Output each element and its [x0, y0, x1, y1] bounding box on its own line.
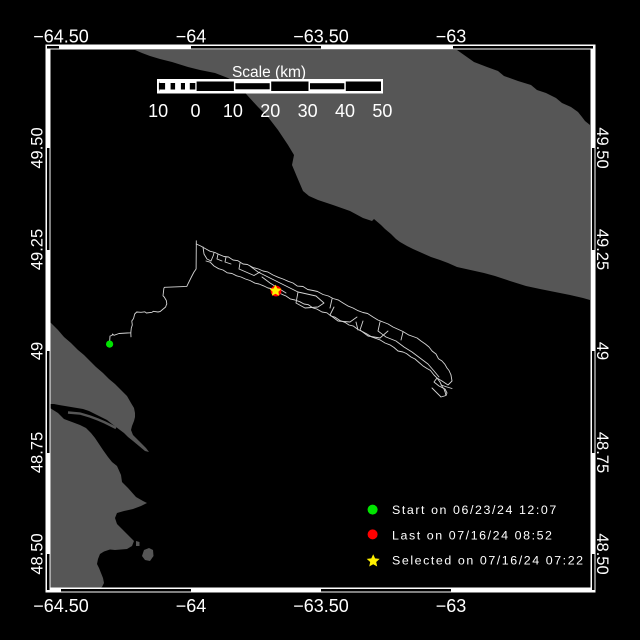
svg-text:0: 0: [190, 101, 200, 121]
svg-text:49.50: 49.50: [29, 127, 47, 168]
svg-text:48.50: 48.50: [29, 533, 47, 574]
svg-text:−64: −64: [176, 27, 207, 47]
svg-text:49.25: 49.25: [593, 229, 611, 270]
svg-text:48.50: 48.50: [593, 533, 611, 574]
svg-text:49: 49: [29, 342, 47, 360]
svg-text:−63.50: −63.50: [293, 596, 349, 616]
svg-text:48.75: 48.75: [593, 432, 611, 473]
svg-text:50: 50: [372, 101, 392, 121]
svg-text:30: 30: [298, 101, 318, 121]
svg-text:−63: −63: [436, 27, 467, 47]
svg-text:Last on 07/16/24 08:52: Last on 07/16/24 08:52: [392, 528, 554, 542]
svg-text:49: 49: [593, 342, 611, 360]
svg-text:−64: −64: [176, 596, 207, 616]
svg-text:49.50: 49.50: [593, 127, 611, 168]
svg-text:49.25: 49.25: [29, 229, 47, 270]
svg-text:Start on 06/23/24 12:07: Start on 06/23/24 12:07: [392, 503, 558, 517]
svg-text:10: 10: [223, 101, 243, 121]
svg-text:Selected on 07/16/24 07:22: Selected on 07/16/24 07:22: [392, 554, 585, 568]
svg-text:Scale (km): Scale (km): [232, 64, 306, 81]
svg-text:20: 20: [260, 101, 280, 121]
svg-text:−63.50: −63.50: [293, 27, 349, 47]
svg-text:−64.50: −64.50: [33, 596, 89, 616]
svg-text:48.75: 48.75: [29, 432, 47, 473]
svg-text:10: 10: [148, 101, 168, 121]
svg-text:−64.50: −64.50: [33, 27, 89, 47]
svg-text:−63: −63: [436, 596, 467, 616]
svg-text:40: 40: [335, 101, 355, 121]
